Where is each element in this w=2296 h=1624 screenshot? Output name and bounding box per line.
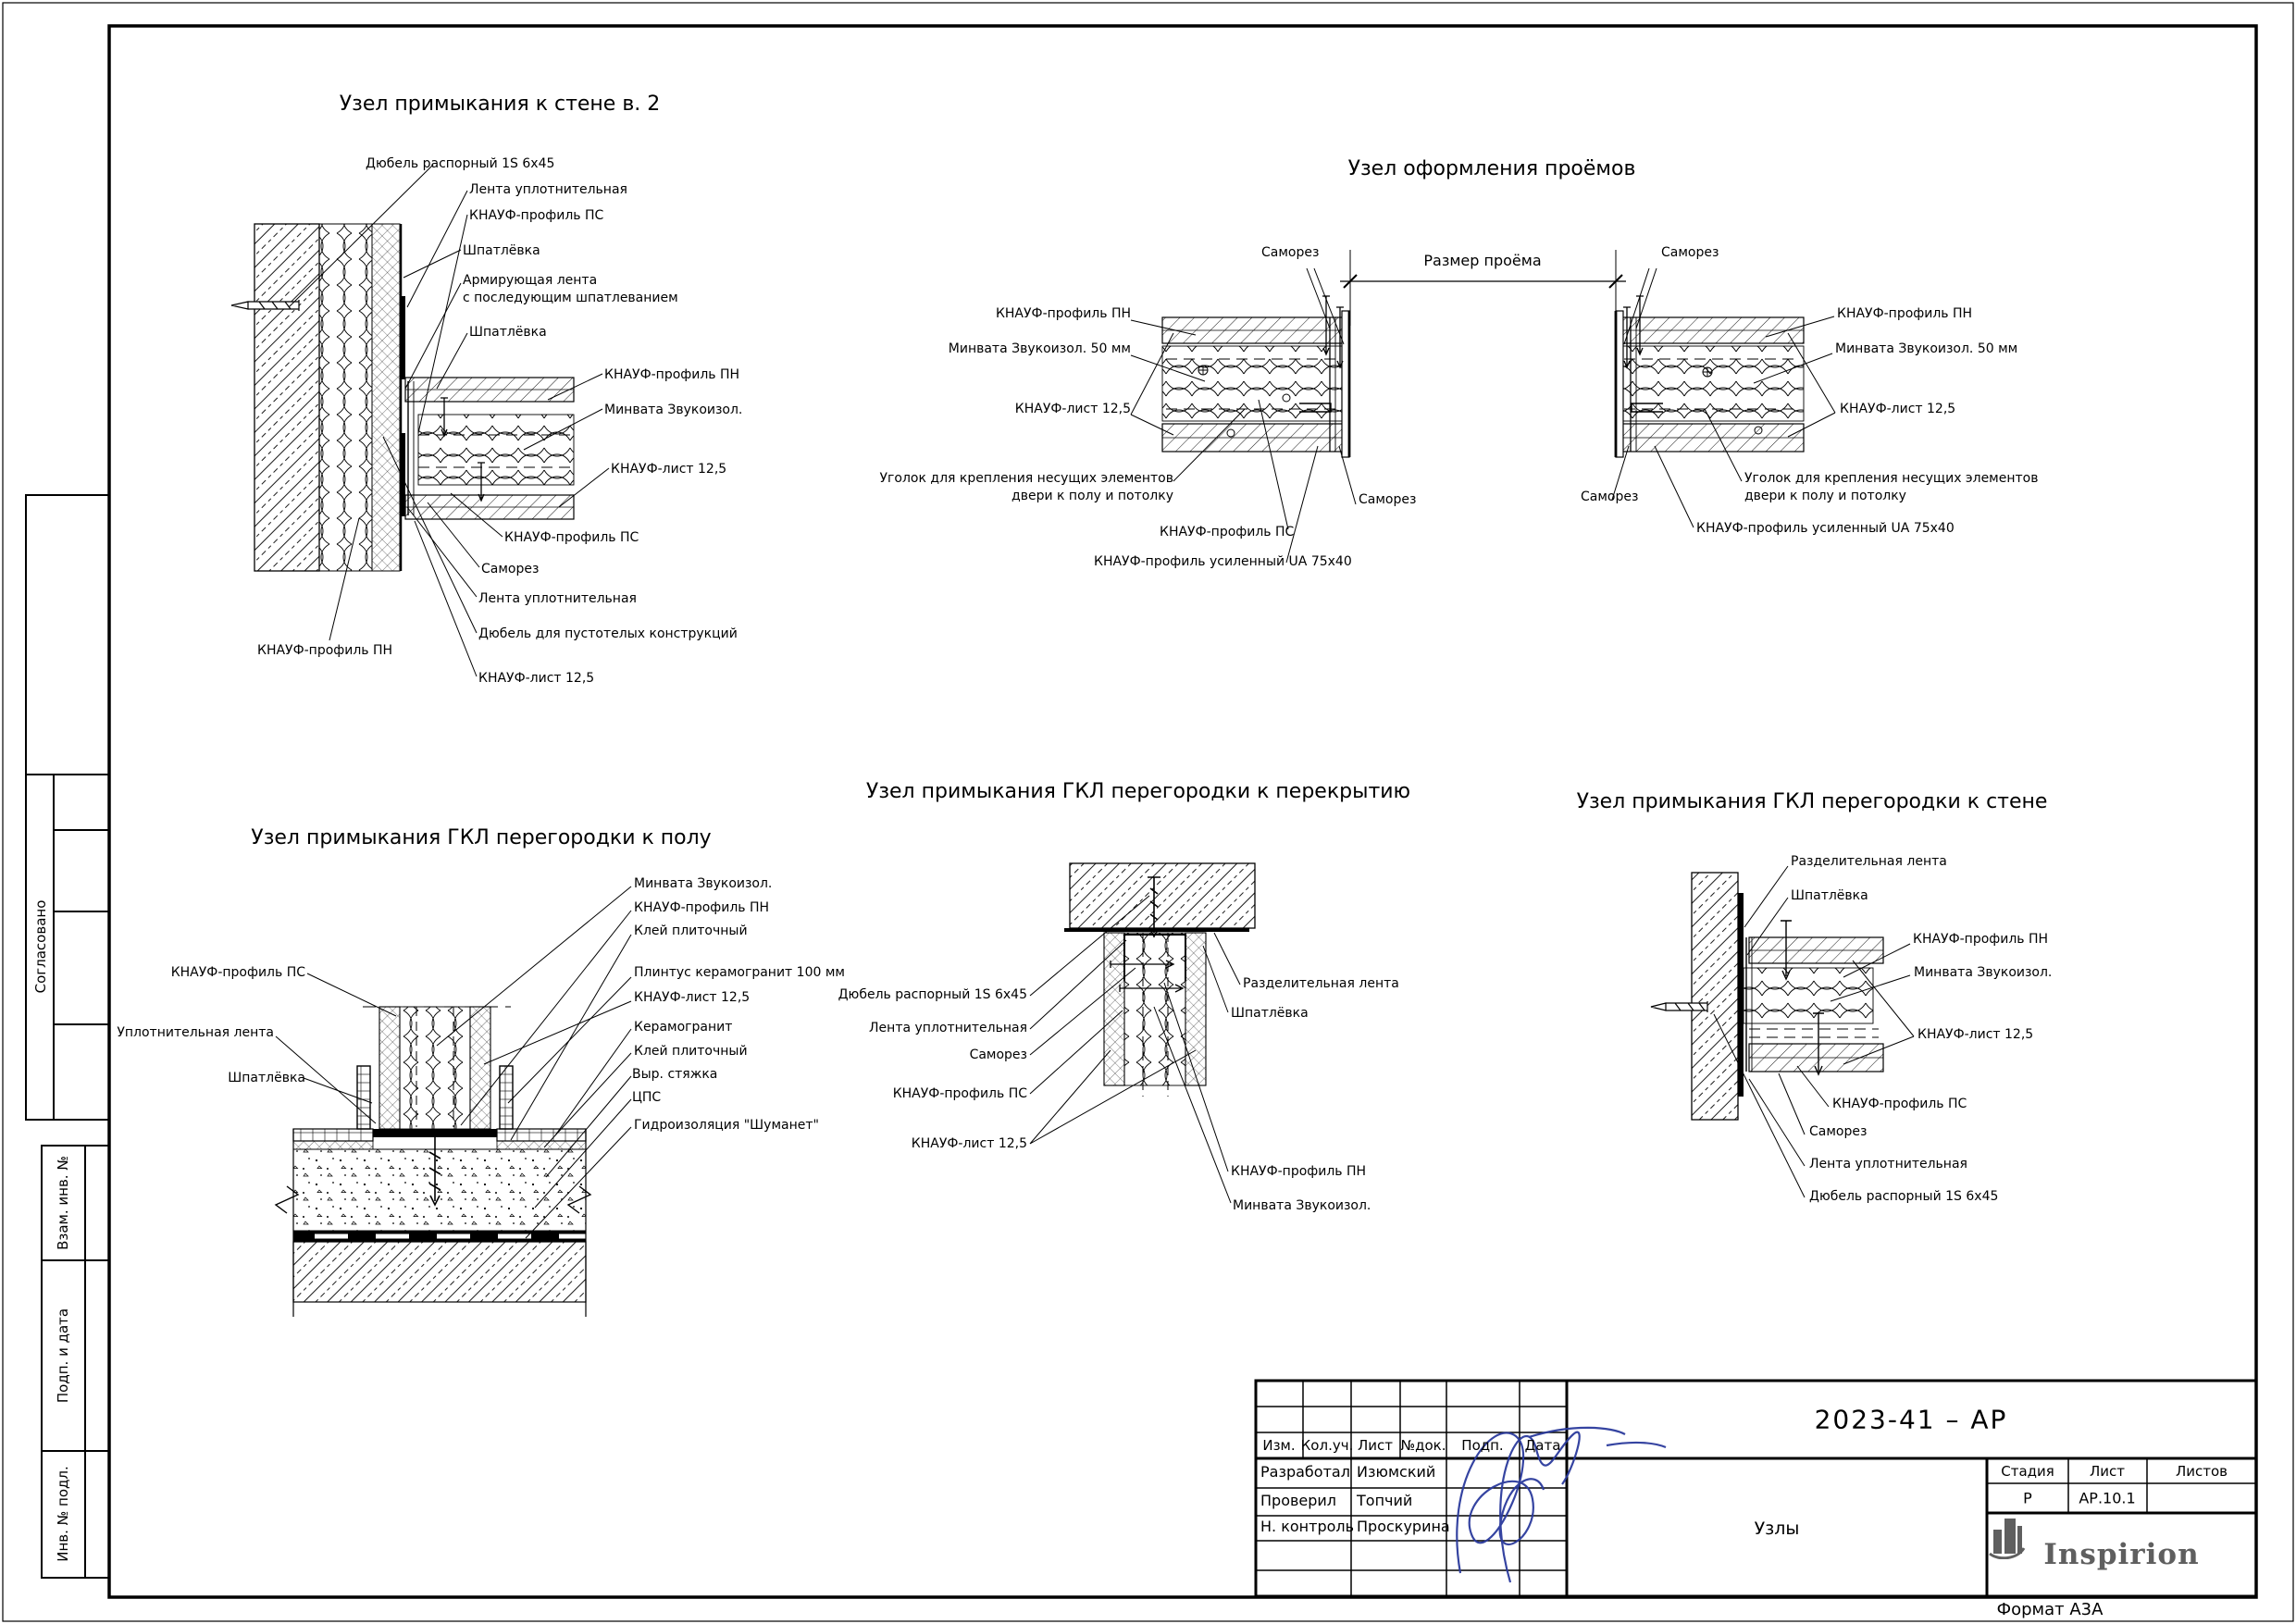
detail-5-drawing [1651,873,1883,1120]
leader-label: Минвата Звукоизол. [604,402,742,419]
leader-label: КНАУФ-лист 12,5 [634,989,750,1007]
role-label: Проверил [1260,1492,1336,1509]
leader-label: ЦПС [632,1089,661,1107]
leader-label: Саморез [481,561,539,578]
margin-boxes [26,495,109,1578]
sheets-label: Листов [2176,1463,2228,1480]
detail-1-title: Узел примыкания к стене в. 2 [340,93,661,116]
leader-label: Разделительная лента [1791,853,1947,871]
leader-label: Саморез [1661,244,1719,262]
leader-label: Шпатлёвка [1791,887,1868,905]
leader-label: Саморез [1809,1123,1867,1141]
leader-label: Саморез [970,1047,1027,1064]
leader-label: Лента уплотнительная [1809,1156,1967,1173]
detail-5-title: Узел примыкания ГКЛ перегородки к стене [1577,790,2048,813]
leader-label: Керамогранит [634,1019,732,1036]
leader-label: Плинтус керамогранит 100 мм [634,964,845,982]
leader-label: Дюбель распорный 1S 6х45 [1809,1188,1998,1206]
doc-title: Узлы [1755,1519,1800,1539]
margin-label-sign-date: Подп. и дата [55,1308,71,1403]
building-logo-icon [1987,1513,2026,1559]
leader-label: Уплотнительная лента [117,1024,274,1042]
leader-label: КНАУФ-лист 12,5 [1840,401,1955,418]
leader-label: КНАУФ-профиль ПН [604,366,739,384]
leader-label: Саморез [1261,244,1319,262]
revision-header-ndok: №док. [1401,1437,1446,1454]
role-label: Н. контроль [1260,1518,1354,1535]
stage-label: Стадия [2001,1463,2054,1480]
leader-label: Минвата Звукоизол. [1233,1197,1371,1215]
detail-2-drawing [1162,250,1804,457]
leader-label: КНАУФ-профиль ПС [171,964,305,982]
leader-label: Выр. стяжка [632,1066,717,1084]
margin-label-replacement-inv: Взам. инв. № [55,1156,71,1250]
leader-label: Разделительная лента [1243,975,1399,993]
leader-label: Минвата Звукоизол. 50 мм [949,341,1131,358]
leader-label: Саморез [1581,489,1638,506]
leader-label: КНАУФ-профиль ПН [1913,931,2048,948]
project-code: 2023-41 – АР [1815,1405,2008,1435]
leader-label: Уголок для крепления несущих элементов д… [880,470,1173,505]
margin-label-agreed: Согласовано [32,900,49,994]
leader-label: КНАУФ-лист 12,5 [611,461,726,478]
leader-label: Уголок для крепления несущих элементов д… [1744,470,2038,505]
leader-label: Лента уплотнительная [469,181,627,199]
leader-label: КНАУФ-профиль ПС [1832,1096,1967,1113]
detail-3-drawing [276,1007,590,1317]
role-name: Топчий [1357,1492,1412,1509]
detail-2-title: Узел оформления проёмов [1348,157,1636,180]
leader-label: КНАУФ-профиль ПН [1231,1163,1366,1181]
leader-label: КНАУФ-профиль усиленный UA 75x40 [1094,553,1352,571]
logo-text: Inspirion [2043,1538,2199,1571]
leader-label: Лента уплотнительная [478,590,637,608]
leader-label: КНАУФ-профиль ПС [504,529,639,547]
leader-label: Дюбель распорный 1S 6х45 [366,155,554,173]
sheet-number: АР.10.1 [2079,1490,2135,1507]
leader-label: Саморез [1359,491,1416,509]
sheet-label: Лист [2090,1463,2125,1480]
role-name: Изюмский [1357,1463,1435,1481]
leader-label: КНАУФ-лист 12,5 [1917,1026,2033,1044]
leader-label: КНАУФ-профиль ПН [1837,305,1972,323]
revision-header-podp: Подп. [1461,1437,1503,1454]
detail-5-leaders [1714,866,1914,1197]
leader-label: Минвата Звукоизол. 50 мм [1835,341,2017,358]
leader-label: КНАУФ-профиль ПС [469,207,603,225]
dimension-label: Размер проёма [1423,252,1541,269]
leader-label: КНАУФ-профиль ПС [893,1085,1027,1103]
role-name: Проскурина [1357,1518,1450,1535]
detail-3-title: Узел примыкания ГКЛ перегородки к полу [251,826,711,849]
leader-label: Шпатлёвка [1231,1005,1309,1023]
leader-label: Дюбель распорный 1S 6х45 [838,986,1027,1004]
leader-label: Шпатлёвка [469,324,547,341]
leader-label: Шпатлёвка [463,242,540,260]
leader-label: Минвата Звукоизол. [634,875,772,893]
leader-label: КНАУФ-профиль ПН [257,642,392,660]
drawing-sheet: Согласовано Взам. инв. № Подп. и дата Ин… [0,0,2296,1624]
leader-label: КНАУФ-лист 12,5 [478,670,594,688]
leader-label: Дюбель для пустотелых конструкций [478,626,738,643]
leader-label: КНАУФ-профиль ПН [634,899,769,917]
leader-label: КНАУФ-лист 12,5 [1015,401,1131,418]
detail-4-title: Узел примыкания ГКЛ перегородки к перекр… [866,780,1410,803]
leader-label: КНАУФ-профиль усиленный UA 75x40 [1696,520,1955,538]
revision-header-koluch: Кол.уч. [1301,1437,1354,1454]
margin-label-inv-original: Инв. № подл. [55,1466,71,1561]
leader-label: Шпатлёвка [228,1070,305,1087]
leader-label: Лента уплотнительная [869,1020,1027,1037]
leader-label: Армирующая лента с последующим шпатлеван… [463,272,678,307]
leader-label: КНАУФ-профиль ПН [996,305,1131,323]
revision-header-izm: Изм. [1262,1437,1295,1454]
leader-label: Клей плиточный [634,1043,748,1060]
revision-header-list: Лист [1358,1437,1393,1454]
stage-value: Р [2023,1490,2032,1507]
detail-4-drawing [1064,863,1255,1097]
company-logo: Inspirion [1987,1513,2256,1596]
leader-label: Минвата Звукоизол. [1914,964,2052,982]
role-label: Разработал [1260,1463,1350,1481]
format-note: Формат А3А [1997,1600,2104,1619]
leader-label: Гидроизоляция "Шуманет" [634,1117,819,1134]
leader-label: Клей плиточный [634,923,748,940]
leader-label: КНАУФ-профиль ПС [1160,524,1294,541]
revision-header-data: Дата [1525,1437,1561,1454]
leader-label: КНАУФ-лист 12,5 [912,1135,1027,1153]
